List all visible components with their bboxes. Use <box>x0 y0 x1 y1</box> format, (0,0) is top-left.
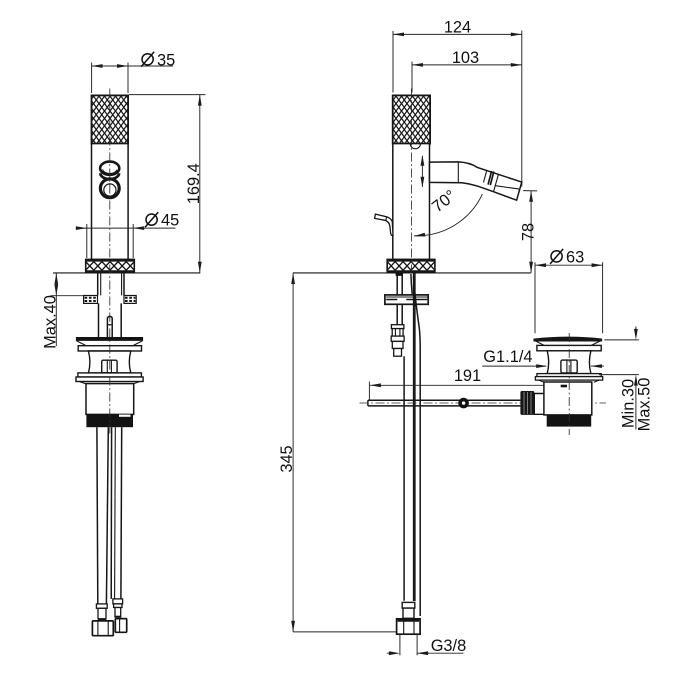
svg-text:345: 345 <box>278 445 296 472</box>
svg-text:78: 78 <box>520 223 538 241</box>
svg-text:45: 45 <box>161 212 179 230</box>
svg-text:63: 63 <box>566 248 584 266</box>
svg-text:G3/8: G3/8 <box>431 637 467 655</box>
svg-text:124: 124 <box>444 19 471 37</box>
svg-text:169.4: 169.4 <box>185 163 203 204</box>
svg-text:103: 103 <box>452 49 479 67</box>
svg-text:35: 35 <box>157 51 175 69</box>
svg-text:Max.50: Max.50 <box>635 378 653 432</box>
svg-text:Max.40: Max.40 <box>41 295 59 349</box>
svg-text:191: 191 <box>454 367 481 385</box>
svg-text:70°: 70° <box>429 187 460 216</box>
svg-text:G1.1/4: G1.1/4 <box>483 348 532 366</box>
